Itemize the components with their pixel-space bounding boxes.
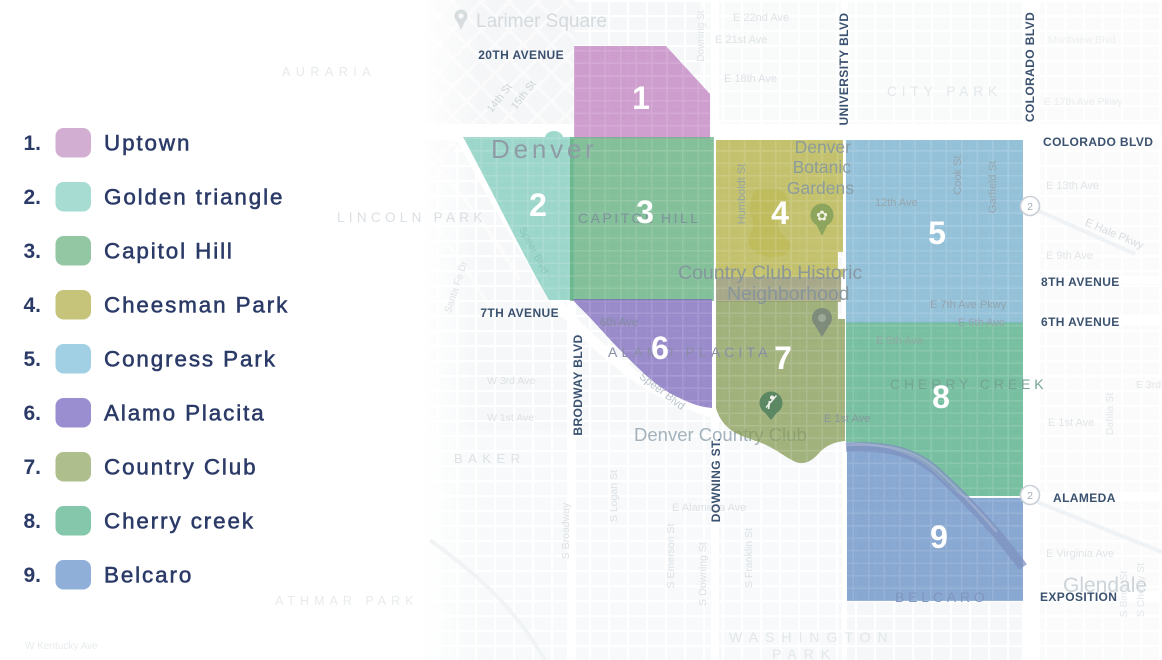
- svg-text:6: 6: [651, 330, 669, 366]
- svg-text:S Franklin St: S Franklin St: [743, 528, 755, 588]
- svg-text:E 21st Ave: E 21st Ave: [715, 34, 767, 46]
- svg-text:W Kentucky Ave: W Kentucky Ave: [25, 641, 98, 652]
- svg-text:E 1st Ave: E 1st Ave: [1048, 417, 1094, 429]
- svg-text:UNIVERSITY BLVD: UNIVERSITY BLVD: [837, 13, 851, 126]
- svg-text:COLORADO BLVD: COLORADO BLVD: [1043, 135, 1153, 149]
- svg-text:CITY PARK: CITY PARK: [887, 84, 1002, 99]
- svg-text:Cook St: Cook St: [952, 155, 964, 194]
- svg-text:S Emerson St: S Emerson St: [665, 524, 677, 589]
- svg-text:Alamo Placita: Alamo Placita: [104, 401, 266, 426]
- svg-text:5.: 5.: [23, 348, 41, 371]
- svg-text:Belcaro: Belcaro: [104, 563, 193, 588]
- svg-text:E 13th Ave: E 13th Ave: [1046, 180, 1099, 192]
- svg-text:1: 1: [632, 80, 650, 116]
- svg-text:ALAMEDA: ALAMEDA: [1053, 491, 1116, 505]
- svg-text:CHERRY CREEK: CHERRY CREEK: [890, 376, 1048, 392]
- svg-text:Denver: Denver: [795, 137, 852, 157]
- svg-text:Denver: Denver: [491, 134, 598, 164]
- svg-text:7: 7: [774, 340, 792, 376]
- svg-text:3.: 3.: [23, 240, 41, 263]
- svg-text:Larimer Square: Larimer Square: [476, 11, 607, 32]
- svg-text:2.: 2.: [23, 186, 41, 209]
- svg-text:S Birch St: S Birch St: [1118, 571, 1130, 618]
- svg-text:8.: 8.: [23, 510, 41, 533]
- svg-text:Neighborhood: Neighborhood: [727, 283, 850, 305]
- svg-text:Gardens: Gardens: [787, 178, 854, 198]
- svg-text:Cheesman Park: Cheesman Park: [104, 293, 289, 318]
- svg-text:PARK: PARK: [772, 646, 837, 660]
- svg-text:E 17th Ave Pkwy: E 17th Ave Pkwy: [1044, 96, 1123, 108]
- svg-text:Downing St: Downing St: [696, 10, 707, 61]
- svg-text:9.: 9.: [23, 564, 41, 587]
- svg-text:Uptown: Uptown: [104, 131, 191, 156]
- svg-text:ALAMO PLACITA: ALAMO PLACITA: [608, 344, 772, 360]
- svg-text:E 9th Ave: E 9th Ave: [1046, 250, 1093, 262]
- svg-text:2: 2: [1027, 201, 1033, 213]
- svg-text:Cherry creek: Cherry creek: [104, 509, 255, 534]
- svg-text:6th Ave: 6th Ave: [600, 317, 638, 329]
- svg-text:Country Club Historic: Country Club Historic: [678, 262, 862, 284]
- svg-text:2: 2: [529, 187, 547, 223]
- svg-text:E 7th Ave Pkwy: E 7th Ave Pkwy: [930, 299, 1007, 311]
- svg-text:BELCARO: BELCARO: [895, 589, 989, 605]
- svg-text:Humboldt St: Humboldt St: [736, 164, 748, 225]
- svg-text:Garfield St: Garfield St: [987, 161, 999, 213]
- svg-text:BAKER: BAKER: [454, 451, 526, 466]
- svg-text:20TH AVENUE: 20TH AVENUE: [478, 48, 564, 62]
- svg-text:9: 9: [930, 519, 948, 555]
- svg-text:S Cherry St: S Cherry St: [1135, 563, 1147, 617]
- svg-text:COLORADO BLVD: COLORADO BLVD: [1023, 12, 1037, 122]
- svg-text:E 3rd: E 3rd: [1136, 379, 1161, 391]
- svg-text:3: 3: [636, 194, 654, 230]
- svg-text:E 5th Ave: E 5th Ave: [876, 335, 923, 347]
- svg-text:AURARIA: AURARIA: [282, 65, 376, 79]
- svg-text:W 3rd Ave: W 3rd Ave: [487, 375, 535, 387]
- svg-text:✿: ✿: [816, 208, 828, 224]
- svg-text:EXPOSITION: EXPOSITION: [1040, 590, 1117, 604]
- svg-text:5: 5: [928, 215, 946, 251]
- svg-text:WASHINGTON: WASHINGTON: [729, 629, 895, 645]
- svg-text:2: 2: [1027, 490, 1033, 502]
- svg-text:ATHMAR PARK: ATHMAR PARK: [275, 594, 418, 608]
- svg-text:S Downing St: S Downing St: [697, 542, 709, 606]
- svg-text:Montview Blvd: Montview Blvd: [1048, 34, 1116, 46]
- svg-text:E Virginia Ave: E Virginia Ave: [1046, 548, 1114, 560]
- svg-text:W 1st Ave: W 1st Ave: [487, 412, 534, 424]
- svg-text:8TH AVENUE: 8TH AVENUE: [1041, 275, 1120, 289]
- svg-text:S Broadway: S Broadway: [560, 502, 572, 559]
- svg-text:E 18th Ave: E 18th Ave: [724, 73, 777, 85]
- svg-text:12th Ave: 12th Ave: [875, 197, 918, 209]
- svg-text:4: 4: [771, 195, 789, 231]
- svg-text:E 1st Ave: E 1st Ave: [824, 413, 870, 425]
- svg-text:4.: 4.: [23, 294, 41, 317]
- svg-text:E 22nd Ave: E 22nd Ave: [733, 12, 789, 24]
- svg-text:LINCOLN PARK: LINCOLN PARK: [337, 210, 487, 225]
- svg-text:S Logan St: S Logan St: [608, 470, 620, 522]
- svg-text:DOWNING ST.: DOWNING ST.: [709, 438, 723, 522]
- svg-text:8: 8: [932, 379, 950, 415]
- svg-text:Botanic: Botanic: [793, 157, 852, 177]
- svg-text:7TH AVENUE: 7TH AVENUE: [480, 306, 559, 320]
- svg-text:Capitol Hill: Capitol Hill: [104, 239, 234, 264]
- svg-text:BRODWAY BLVD: BRODWAY BLVD: [571, 334, 585, 435]
- svg-text:6TH AVENUE: 6TH AVENUE: [1041, 315, 1120, 329]
- svg-text:Golden triangle: Golden triangle: [104, 185, 284, 210]
- svg-text:6.: 6.: [23, 402, 41, 425]
- svg-text:Country Club: Country Club: [104, 455, 257, 480]
- svg-text:Dahlia St: Dahlia St: [1104, 393, 1116, 436]
- svg-text:1.: 1.: [23, 132, 41, 155]
- svg-text:E 6th Ave: E 6th Ave: [958, 317, 1005, 329]
- svg-text:7.: 7.: [23, 456, 41, 479]
- svg-text:Congress Park: Congress Park: [104, 347, 277, 372]
